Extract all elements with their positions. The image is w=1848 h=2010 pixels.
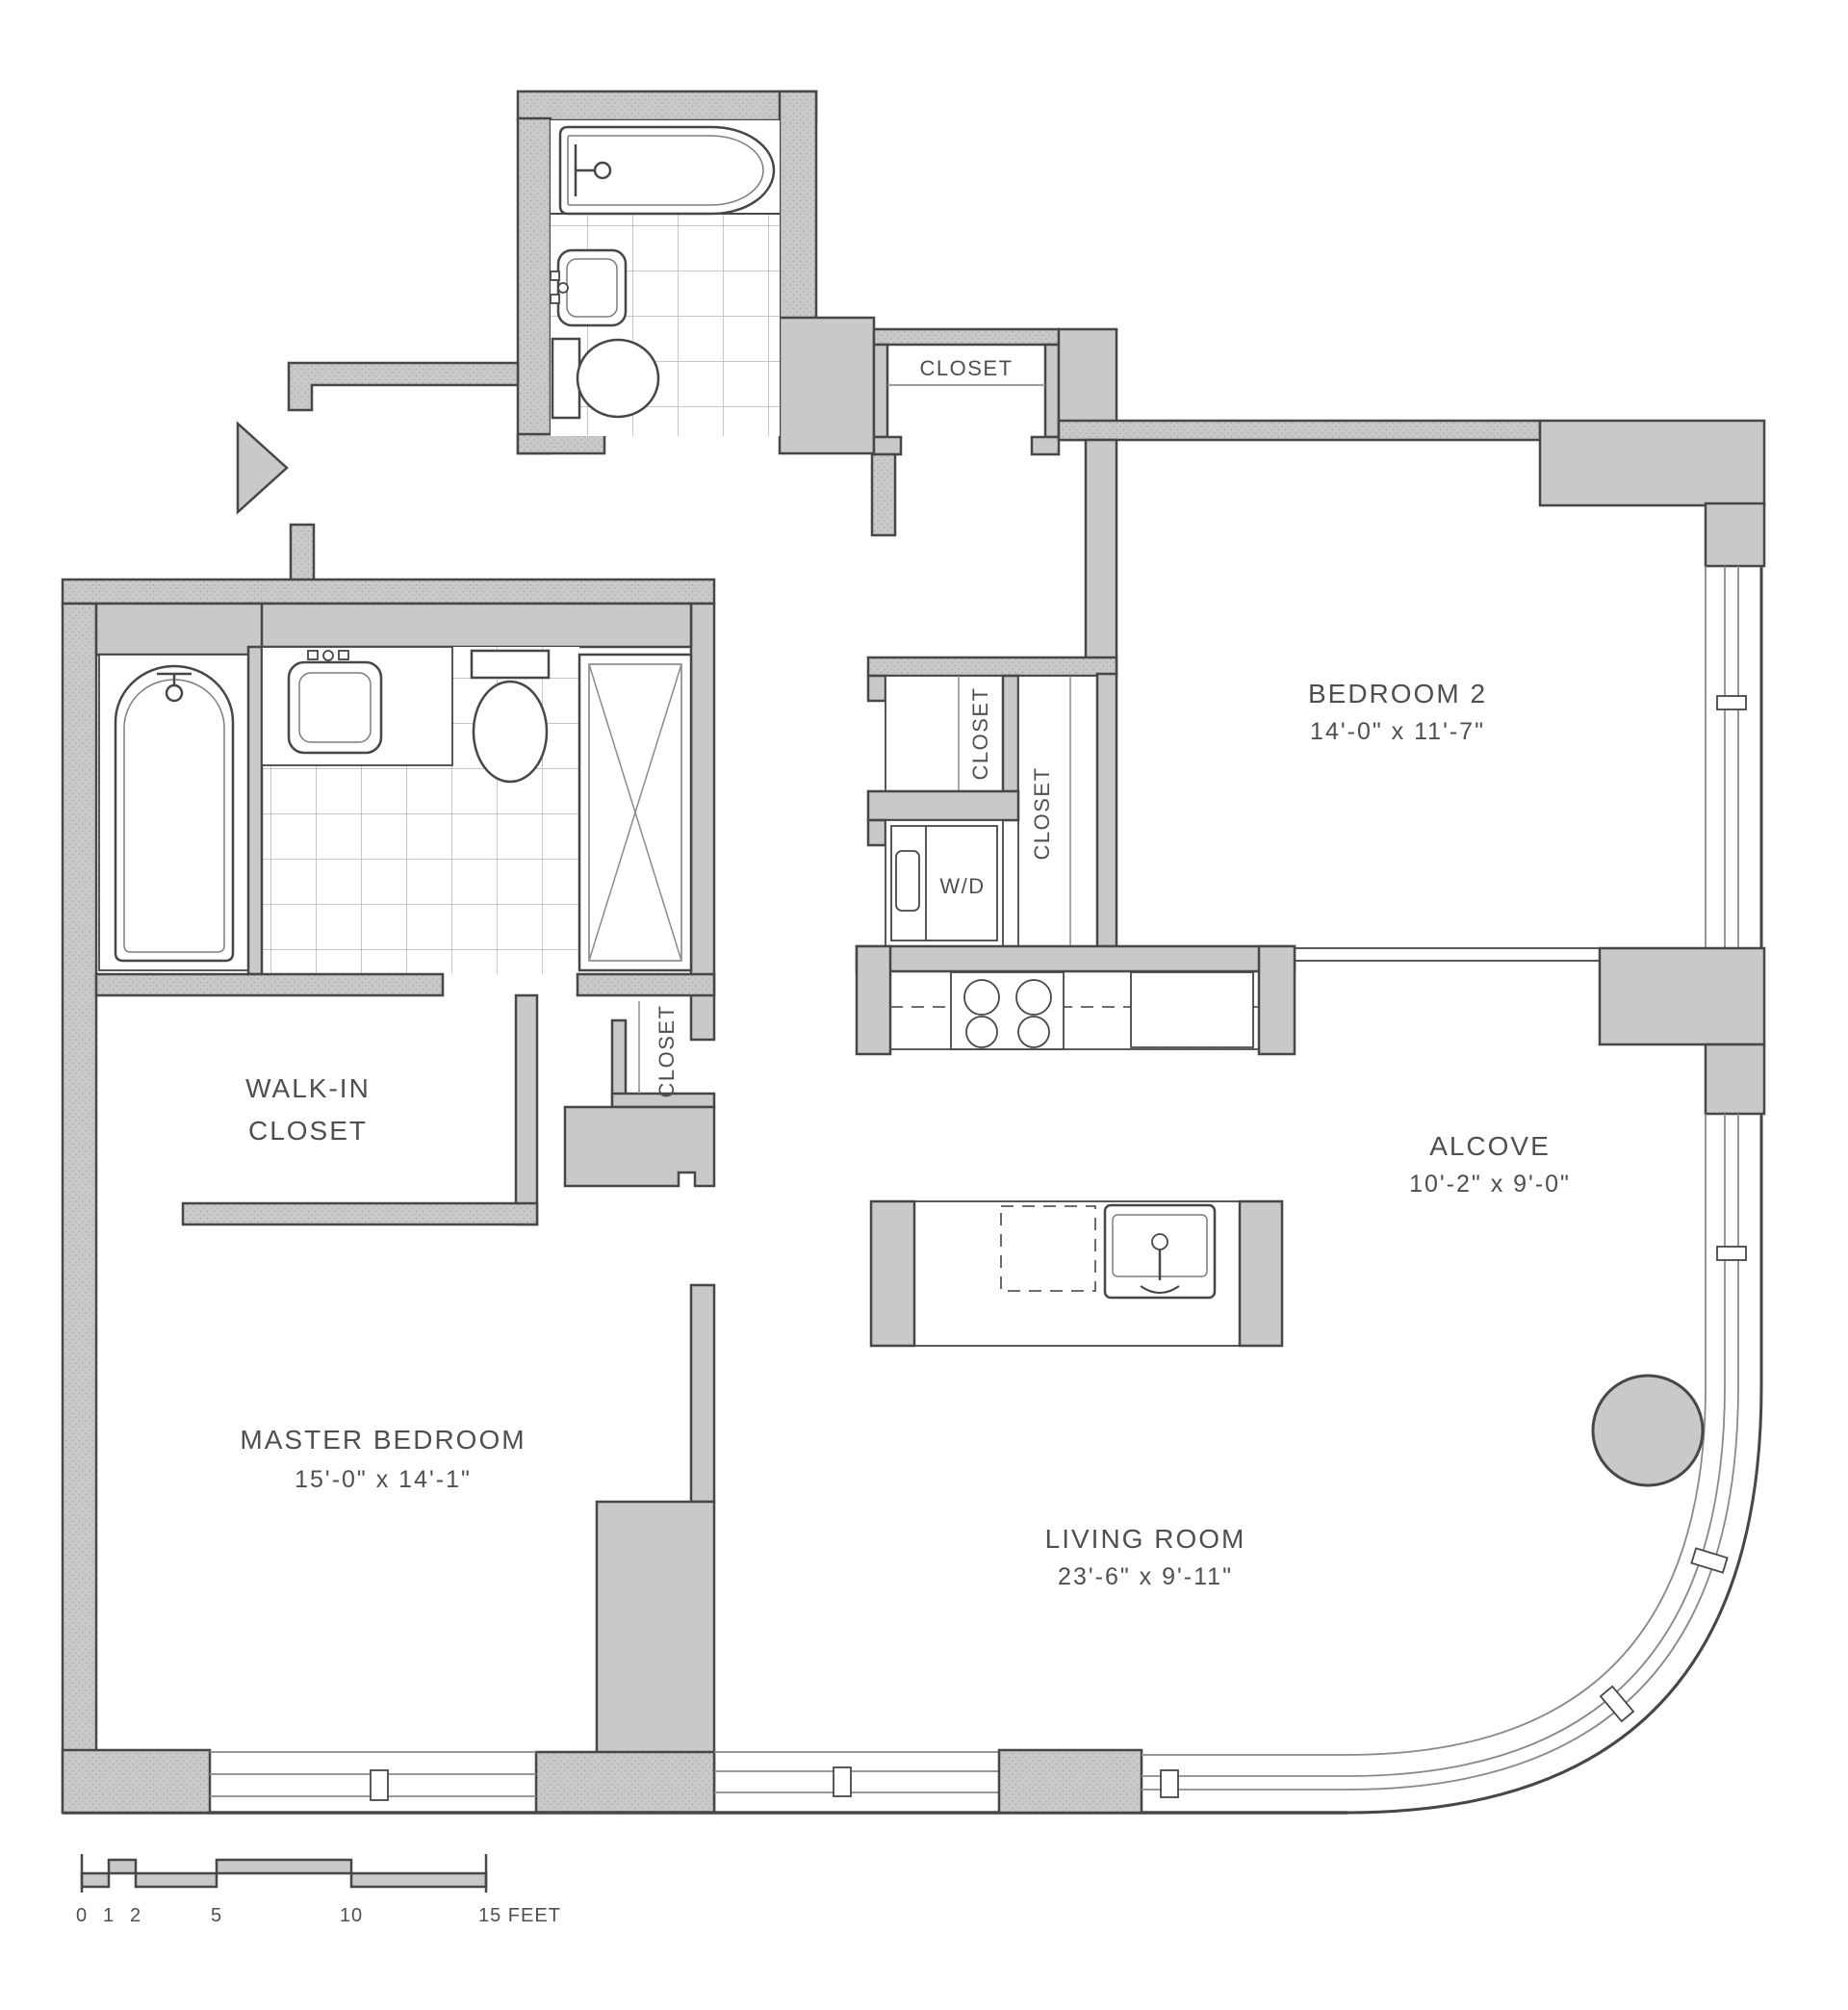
island-counter (871, 1201, 1282, 1346)
wall (518, 91, 816, 120)
wall (1600, 948, 1764, 1044)
door-jamb (868, 820, 885, 845)
entry-arrow-icon (238, 424, 287, 512)
sink-icon (551, 250, 626, 325)
wall (780, 318, 874, 453)
floorplan-drawing: CLOSET BEDROOM 2 14'-0" x 11'-7" CLOSET (0, 0, 1848, 2010)
toilet-icon (552, 339, 658, 418)
entry (238, 363, 518, 597)
bedroom2-name: BEDROOM 2 (1308, 679, 1487, 709)
living-room-dims: 23'-6" x 9'-11" (1058, 1563, 1233, 1590)
wall (1086, 440, 1116, 674)
wall (1059, 421, 1540, 440)
wall (868, 657, 1116, 676)
wall (1706, 503, 1764, 566)
wall (289, 363, 518, 410)
wd-label: W/D (939, 874, 985, 898)
wall (63, 604, 96, 1813)
scale-tick-2: 2 (130, 1905, 141, 1926)
walk-in-closet-label-2: CLOSET (248, 1116, 368, 1146)
master-living-divider (536, 1285, 714, 1813)
wall (780, 91, 816, 320)
scale-segment (217, 1860, 351, 1873)
island-end-cap (1240, 1201, 1282, 1346)
toilet-icon (472, 651, 549, 782)
wall (518, 118, 551, 453)
alcove-dims: 10'-2" x 9'-0" (1409, 1171, 1571, 1198)
wall (248, 647, 262, 974)
refrigerator-icon (1131, 972, 1253, 1047)
master-hall-closet-label: CLOSET (654, 1004, 679, 1097)
scale-bar: 0 1 2 5 10 15 FEET (76, 1854, 561, 1926)
floorplan-page: CLOSET BEDROOM 2 14'-0" x 11'-7" CLOSET (0, 0, 1848, 2010)
wall (1259, 946, 1295, 1054)
living-room-name: LIVING ROOM (1045, 1524, 1246, 1554)
wall (536, 1752, 714, 1813)
door-jamb (1032, 437, 1059, 454)
window-mullion (371, 1770, 388, 1800)
wall (1097, 674, 1116, 946)
closet-a-label: CLOSET (968, 686, 992, 780)
kitchen-island (871, 1201, 1282, 1346)
closet-b-label: CLOSET (1030, 766, 1054, 860)
stove-icon (951, 972, 1064, 1049)
wall (183, 1203, 537, 1224)
alcove: ALCOVE 10'-2" x 9'-0" (1409, 1114, 1761, 1386)
wall (63, 580, 714, 604)
scale-tick-5: 5 (211, 1905, 222, 1926)
wall (96, 974, 443, 995)
window-mullion (1717, 696, 1746, 709)
walk-in-closet-label-1: WALK-IN (245, 1073, 371, 1103)
wall (565, 1107, 714, 1186)
wall (577, 974, 714, 995)
window-mullion (1717, 1247, 1746, 1260)
window (1142, 1755, 1347, 1797)
scale-segment (109, 1860, 136, 1873)
wall (96, 604, 262, 655)
scale-segment (136, 1873, 217, 1887)
window (1706, 1114, 1761, 1386)
wall (1706, 1044, 1764, 1114)
scale-tick-10: 10 (340, 1905, 363, 1926)
window (1706, 566, 1761, 948)
hall-closet-label: CLOSET (919, 356, 1013, 380)
master-bedroom-name: MASTER BEDROOM (240, 1425, 526, 1455)
wall (868, 791, 1018, 820)
wall (248, 604, 691, 647)
wall (857, 946, 1295, 971)
kitchen (857, 946, 1295, 1054)
alcove-name: ALCOVE (1429, 1131, 1551, 1161)
scale-segment (351, 1873, 486, 1887)
door-jamb (868, 676, 885, 701)
island-end-cap (871, 1201, 914, 1346)
wall (874, 345, 887, 437)
bathroom-2 (518, 91, 874, 453)
living-room: LIVING ROOM 23'-6" x 9'-11" (1045, 1376, 1703, 1590)
sink-icon (289, 651, 381, 753)
wall (516, 995, 537, 1224)
column (1593, 1376, 1703, 1485)
scale-segment (82, 1873, 109, 1887)
window-mullion (1601, 1687, 1633, 1721)
window-mullion (1161, 1770, 1178, 1797)
wall (999, 1750, 1142, 1813)
wall (518, 434, 604, 453)
bathtub-icon (560, 127, 774, 214)
shower-icon (579, 655, 691, 970)
scale-tick-0: 0 (76, 1905, 88, 1926)
scale-tick-1: 1 (103, 1905, 115, 1926)
wall (691, 1285, 714, 1502)
wall (872, 454, 895, 535)
bathtub-icon (115, 666, 233, 961)
wall (1540, 421, 1764, 505)
kitchen-sink-icon (1105, 1205, 1215, 1298)
wall (874, 329, 1059, 345)
bedroom2-closets: CLOSET CLOSET W/D (868, 657, 1116, 946)
wall (857, 946, 890, 1054)
wall (63, 1750, 210, 1813)
window (714, 1752, 999, 1796)
window-mullion (834, 1767, 851, 1796)
wall (1003, 676, 1018, 791)
window (210, 1752, 536, 1800)
washer-dryer-icon: W/D (885, 820, 1003, 946)
scale-end-label: 15 FEET (478, 1905, 561, 1926)
master-bedroom-dims: 15'-0" x 14'-1" (295, 1466, 472, 1493)
wall (1045, 345, 1059, 437)
walk-in-closet: WALK-IN CLOSET (183, 995, 537, 1224)
master-bedroom: MASTER BEDROOM 15'-0" x 14'-1" (240, 1425, 526, 1493)
door-jamb (874, 437, 901, 454)
bedroom2-dims: 14'-0" x 11'-7" (1310, 718, 1485, 745)
master-bathroom (96, 604, 714, 995)
